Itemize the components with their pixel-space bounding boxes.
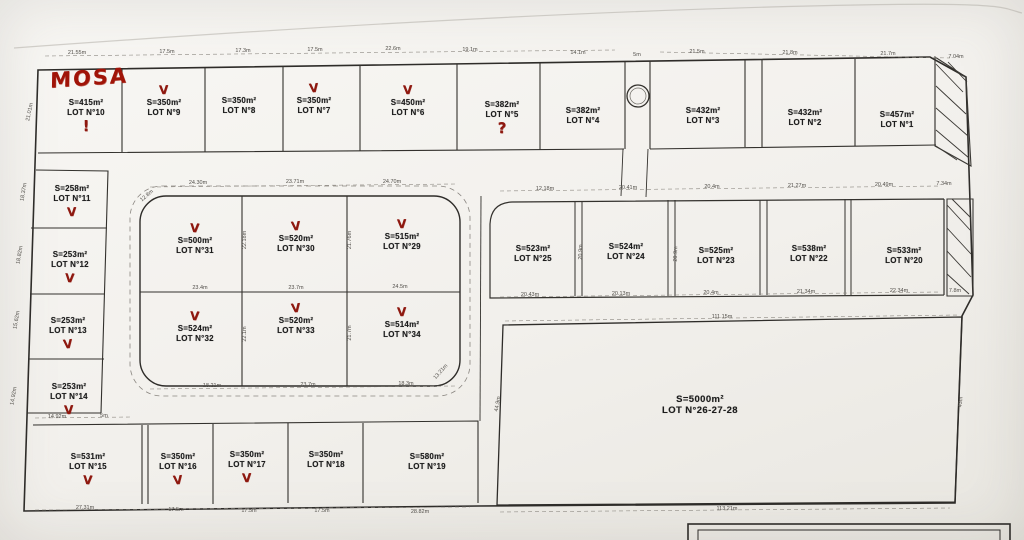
dimension-label: 22.1m	[242, 326, 248, 341]
dimension-label: 19.1m	[462, 47, 477, 53]
dimension-label: 43m	[958, 396, 965, 407]
lot-number-label: LOT N°18	[307, 460, 345, 470]
lot-number-label: LOT N°4	[566, 116, 599, 126]
road-line	[480, 196, 481, 421]
dimension-label: 20.13m	[612, 291, 630, 297]
lot-cell-25: S=523m²LOT N°25	[494, 244, 572, 263]
lot-number-label: LOT N°10	[67, 108, 105, 118]
dimension-label: 21.27m	[788, 183, 806, 189]
lot-area-label: S=500m²	[178, 236, 213, 246]
handwritten-question-mark: ?	[498, 121, 507, 136]
lot-cell-26-27-28: S=5000m²LOT N°26-27-28	[590, 394, 810, 417]
dimension-label: 27.31m	[76, 505, 94, 511]
lot-cell-7: VS=350m²LOT N°7	[278, 82, 350, 115]
dimension-label: 23.7m	[288, 285, 303, 291]
dimension-label: 21.76m	[347, 231, 353, 249]
lot-number-label: LOT N°15	[69, 462, 107, 472]
lot-cell-20: S=533m²LOT N°20	[862, 246, 946, 265]
lot-number-label: LOT N°11	[53, 194, 90, 204]
dimension-label: 22.34m	[890, 288, 908, 294]
lot-area-label: S=520m²	[279, 316, 314, 326]
dimension-label: 21.5m	[689, 49, 704, 55]
handwritten-check-mark: V	[173, 474, 184, 487]
lot-cell-23: S=525m²LOT N°23	[673, 246, 759, 265]
dimension-label: 7.34m	[936, 181, 951, 187]
dimension-label: 21.7m	[880, 51, 895, 57]
lot-area-label: S=350m²	[297, 96, 332, 106]
dimension-label: 21.7m	[347, 325, 353, 340]
lot-number-label: LOT N°34	[383, 330, 421, 340]
lot-cell-29: VS=515m²LOT N°29	[356, 218, 448, 251]
dimension-label: 17.5m	[241, 508, 256, 514]
lot-number-label: LOT N°17	[228, 460, 266, 470]
dimension-label: 7.04m	[948, 54, 963, 60]
lot-area-label: S=253m²	[53, 250, 88, 260]
lot-area-label: S=382m²	[566, 106, 601, 116]
handwritten-check-mark: V	[63, 338, 74, 351]
handwritten-check-mark: V	[190, 310, 200, 322]
lot-area-label: S=520m²	[279, 234, 314, 244]
lot-area-label: S=350m²	[309, 450, 344, 460]
lot-cell-1: S=457m²LOT N°1	[855, 110, 939, 129]
lot-cell-17: S=350m²LOT N°17V	[214, 450, 280, 484]
lot-cell-4: S=382m²LOT N°4	[543, 106, 623, 125]
lot-number-label: LOT N°31	[176, 246, 214, 256]
lot-cell-15: S=531m²LOT N°15V	[48, 452, 128, 486]
lot-number-label: LOT N°24	[607, 252, 645, 262]
lot-cell-13: S=253m²LOT N°13V	[36, 316, 100, 350]
lot-number-label: LOT N°33	[277, 326, 315, 336]
lot-number-label: LOT N°5	[485, 110, 518, 120]
dimension-label: 20.4m	[704, 184, 719, 190]
lot-number-label: LOT N°20	[885, 256, 923, 266]
dimension-label: 21.8m	[782, 50, 797, 56]
lot-area-label: S=350m²	[147, 98, 182, 108]
lot-area-label: S=524m²	[178, 324, 213, 334]
lot-cell-5: S=382m²LOT N°5?	[462, 100, 542, 136]
dimension-label: 20.4m	[703, 290, 718, 296]
dimension-label: 23.7m	[300, 382, 315, 388]
dimension-label: 111.15m	[712, 314, 733, 320]
lot-number-label: LOT N°30	[277, 244, 315, 254]
lot-number-label: LOT N°6	[391, 108, 424, 118]
lot-cell-30: VS=520m²LOT N°30	[250, 220, 342, 253]
dimension-label: 24.30m	[189, 180, 207, 186]
lot-area-label: S=525m²	[699, 246, 734, 256]
lot-cell-33: VS=520m²LOT N°33	[250, 302, 342, 335]
dimension-label: 5m	[100, 413, 108, 419]
lot-area-label: S=457m²	[880, 110, 915, 120]
dimension-label: 20.9m	[673, 246, 680, 261]
lot-cell-19: S=580m²LOT N°19	[383, 452, 471, 471]
lot-cell-34: VS=514m²LOT N°34	[356, 306, 448, 339]
lot-cell-18: S=350m²LOT N°18	[290, 450, 362, 469]
lot-area-label: S=514m²	[385, 320, 420, 330]
dimension-label: 7.8m	[949, 288, 961, 294]
lot-number-label: LOT N°1	[880, 120, 913, 130]
scan-edge-line	[14, 4, 1022, 48]
dimension-label: 17.5m	[159, 49, 174, 55]
handwritten-check-mark: V	[397, 218, 407, 230]
lot-area-label: S=350m²	[161, 452, 196, 462]
lot-number-label: LOT N°3	[686, 116, 719, 126]
lot-area-label: S=415m²	[69, 98, 104, 108]
lot-cell-3: S=432m²LOT N°3	[660, 106, 746, 125]
handwritten-check-mark: V	[65, 272, 75, 284]
handwritten-check-mark: V	[159, 84, 169, 96]
dimension-label: 20.43m	[521, 292, 539, 298]
dimension-label: 22.6m	[385, 46, 400, 52]
dimension-label: 17.5m	[307, 47, 322, 53]
road-circle-symbol	[627, 85, 649, 107]
hatch-strip-top-right	[935, 57, 971, 166]
dimension-label: 20.9m	[578, 244, 585, 259]
handwritten-check-mark: V	[83, 474, 93, 486]
dimension-label: 24.5m	[392, 284, 407, 290]
lot-cell-8: S=350m²LOT N°8	[203, 96, 275, 115]
dimension-label: 12.18m	[536, 186, 554, 192]
lot-area-label: S=524m²	[609, 242, 644, 252]
lot-number-label: LOT N°19	[408, 462, 446, 472]
hatch-strip-mid-right	[947, 199, 973, 296]
lot-cell-2: S=432m²LOT N°2	[762, 108, 848, 127]
lot-number-label: LOT N°29	[383, 242, 421, 252]
dimension-label: 17.5m	[314, 508, 329, 514]
lot-number-label: LOT N°8	[222, 106, 255, 116]
lot-cell-11: S=258m²LOT N°11V	[40, 184, 104, 218]
dimension-label: 23.71m	[286, 179, 304, 185]
lot-cell-12: S=253m²LOT N°12V	[38, 250, 102, 284]
dimension-label: 14.1m	[570, 50, 585, 56]
lot-cell-10: S=415m²LOT N°10!	[55, 98, 117, 134]
lot-number-label: LOT N°2	[788, 118, 821, 128]
lot-cell-24: S=524m²LOT N°24	[585, 242, 667, 261]
lot-number-label: LOT N°32	[176, 334, 214, 344]
title-block	[688, 524, 1010, 540]
lot-number-label: LOT N°22	[790, 254, 828, 264]
lot-number-label: LOT N°25	[514, 254, 552, 264]
handwritten-check-mark: V	[397, 306, 407, 318]
dimension-label: 23.4m	[192, 285, 207, 291]
handwritten-check-mark: V	[67, 206, 77, 218]
lot-area-label: S=580m²	[410, 452, 445, 462]
dimension-label: 20.41m	[619, 185, 637, 191]
dimension-label: 5m	[633, 52, 641, 58]
dimension-label: 17.3m	[235, 48, 250, 54]
lot-number-label: LOT N°16	[159, 462, 197, 472]
lot-area-label: S=382m²	[485, 100, 520, 110]
lot-cell-16: S=350m²LOT N°16V	[145, 452, 211, 486]
lot-cell-32: VS=524m²LOT N°32	[150, 310, 240, 343]
dimension-label: 21.34m	[797, 289, 815, 295]
lot-area-label: S=533m²	[887, 246, 922, 256]
handwritten-exclamation-mark: !	[83, 119, 90, 134]
lot-cell-31: VS=500m²LOT N°31	[150, 222, 240, 255]
dimension-label: 20.49m	[875, 182, 893, 188]
lot-number-label: LOT N°7	[297, 106, 330, 116]
lot-area-label: S=523m²	[516, 244, 551, 254]
lot-area-label: S=515m²	[385, 232, 420, 242]
lot-area-label: S=253m²	[52, 382, 87, 392]
lot-number-label: LOT N°9	[147, 108, 180, 118]
handwritten-check-mark: V	[242, 472, 252, 484]
dimension-label: 17.5m	[168, 507, 183, 513]
lot-number-label: LOT N°26-27-28	[662, 405, 738, 416]
lot-area-label: S=531m²	[71, 452, 106, 462]
subdivision-plan: S=415m²LOT N°10!VS=350m²LOT N°9S=350m²LO…	[0, 0, 1024, 540]
dimension-label: 21.55m	[68, 50, 86, 56]
dimension-label: 22.18m	[242, 231, 248, 249]
lot-number-label: LOT N°14	[50, 392, 88, 402]
lot-area-label: S=450m²	[391, 98, 426, 108]
lot-area-label: S=350m²	[222, 96, 257, 106]
lot-number-label: LOT N°23	[697, 256, 735, 266]
handwritten-check-mark: V	[309, 82, 320, 95]
dimension-label: 113.21m	[717, 506, 738, 512]
dimension-label: 18.3m	[398, 381, 413, 387]
lot-cell-14: S=253m²LOT N°14V	[38, 382, 100, 416]
lot-cell-6: VS=450m²LOT N°6	[370, 84, 446, 117]
lot-area-label: S=432m²	[788, 108, 823, 118]
handwritten-check-mark: V	[291, 220, 302, 233]
lot-area-label: S=258m²	[55, 184, 90, 194]
dimension-label: 24.70m	[383, 179, 401, 185]
lot-area-label: S=432m²	[686, 106, 721, 116]
dimension-label: 14.92m	[48, 414, 66, 420]
dimension-label: 18.21m	[203, 383, 221, 389]
handwritten-check-mark: V	[291, 302, 302, 315]
lot-number-label: LOT N°12	[51, 260, 89, 270]
lot-area-label: S=253m²	[51, 316, 86, 326]
dimension-label: 28.82m	[411, 509, 429, 515]
lot-cell-9: VS=350m²LOT N°9	[128, 84, 200, 117]
lot-area-label: S=350m²	[230, 450, 265, 460]
lot-area-label: S=5000m²	[676, 394, 724, 405]
handwritten-check-mark: V	[403, 84, 413, 96]
lot-area-label: S=538m²	[792, 244, 827, 254]
lot-cell-22: S=538m²LOT N°22	[768, 244, 850, 263]
handwritten-check-mark: V	[190, 222, 200, 234]
lot-number-label: LOT N°13	[49, 326, 87, 336]
